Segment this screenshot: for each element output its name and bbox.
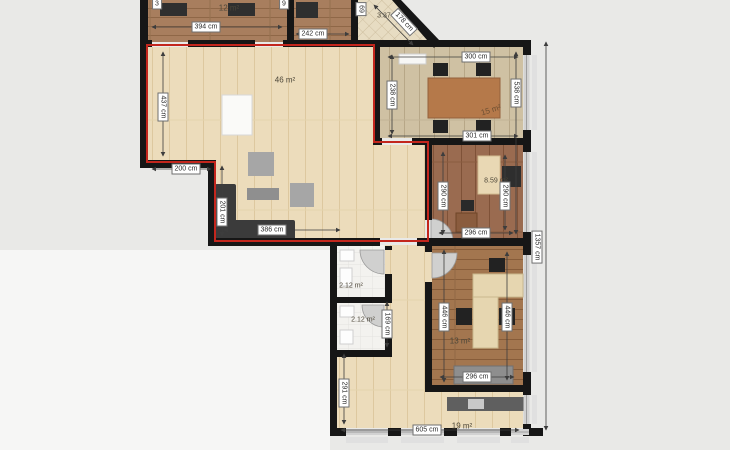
dim-cut-a: 3	[152, 0, 162, 10]
dim-office-right: 446 cm	[502, 303, 513, 332]
chair[interactable]	[433, 120, 448, 133]
table[interactable]	[248, 152, 274, 176]
dim-middle-left: 290 cm	[438, 182, 449, 211]
dim-office-bottom: 296 cm	[463, 372, 492, 383]
sink[interactable]	[468, 399, 484, 409]
dim-office-left: 446 cm	[439, 303, 450, 332]
desk[interactable]	[160, 3, 187, 16]
area-label-bathroom-top: 2.12 m²	[339, 283, 363, 290]
chair[interactable]	[456, 308, 472, 325]
rug[interactable]	[222, 95, 252, 135]
dim-living-side: 201 cm	[217, 198, 228, 227]
area-label-hall: 19 m²	[452, 422, 472, 431]
dim-bath-right: 169 cm	[382, 310, 393, 339]
coffee-table[interactable]	[247, 188, 279, 200]
kitchen-counter[interactable]	[447, 397, 528, 411]
floor-plan-canvas: 394 cm 242 cm 178 cm 300 cm 301 cm 238 c…	[0, 0, 730, 450]
toilet[interactable]	[340, 306, 354, 317]
chair[interactable]	[476, 63, 491, 76]
dim-meeting-left: 238 cm	[387, 81, 398, 110]
canvas-background-light	[0, 250, 330, 450]
area-label-office-room: 13 m²	[450, 337, 470, 346]
dim-cut-c: 69	[356, 2, 367, 16]
dim-living-left: 437 cm	[158, 93, 169, 122]
dim-building-right: 1357 cm	[532, 231, 543, 264]
chair[interactable]	[433, 63, 448, 76]
dim-living-step: 200 cm	[172, 164, 201, 175]
chair[interactable]	[461, 200, 474, 211]
dim-meeting-top: 300 cm	[462, 52, 491, 63]
area-label-bathroom-bottom: 2.12 m²	[351, 317, 375, 324]
office-desk[interactable]	[473, 274, 523, 297]
dim-meeting-bottom: 301 cm	[463, 131, 492, 142]
dim-cut-b: 9	[279, 0, 289, 10]
dim-right-span: 538 cm	[511, 79, 522, 108]
chair[interactable]	[489, 258, 505, 272]
dim-middle-bottom: 296 cm	[462, 228, 491, 239]
whiteboard[interactable]	[399, 54, 426, 64]
dim-top-left-width: 394 cm	[192, 22, 221, 33]
floor-plan-drawing	[0, 0, 730, 450]
dim-hall-bottom: 605 cm	[413, 425, 442, 436]
desk[interactable]	[296, 2, 318, 18]
office-desk[interactable]	[473, 297, 498, 348]
area-label-top-left-room: 12 m²	[219, 4, 239, 13]
dim-top-mid-width: 242 cm	[299, 29, 328, 40]
washbasin[interactable]	[340, 330, 353, 344]
cabinet[interactable]	[478, 156, 500, 194]
dim-middle-right: 290 cm	[500, 182, 511, 211]
area-label-living-room: 46 m²	[275, 76, 295, 85]
toilet[interactable]	[340, 250, 354, 261]
table[interactable]	[290, 183, 314, 207]
dim-living-bottom: 386 cm	[258, 225, 287, 236]
dim-hall-left: 291 cm	[339, 379, 350, 408]
